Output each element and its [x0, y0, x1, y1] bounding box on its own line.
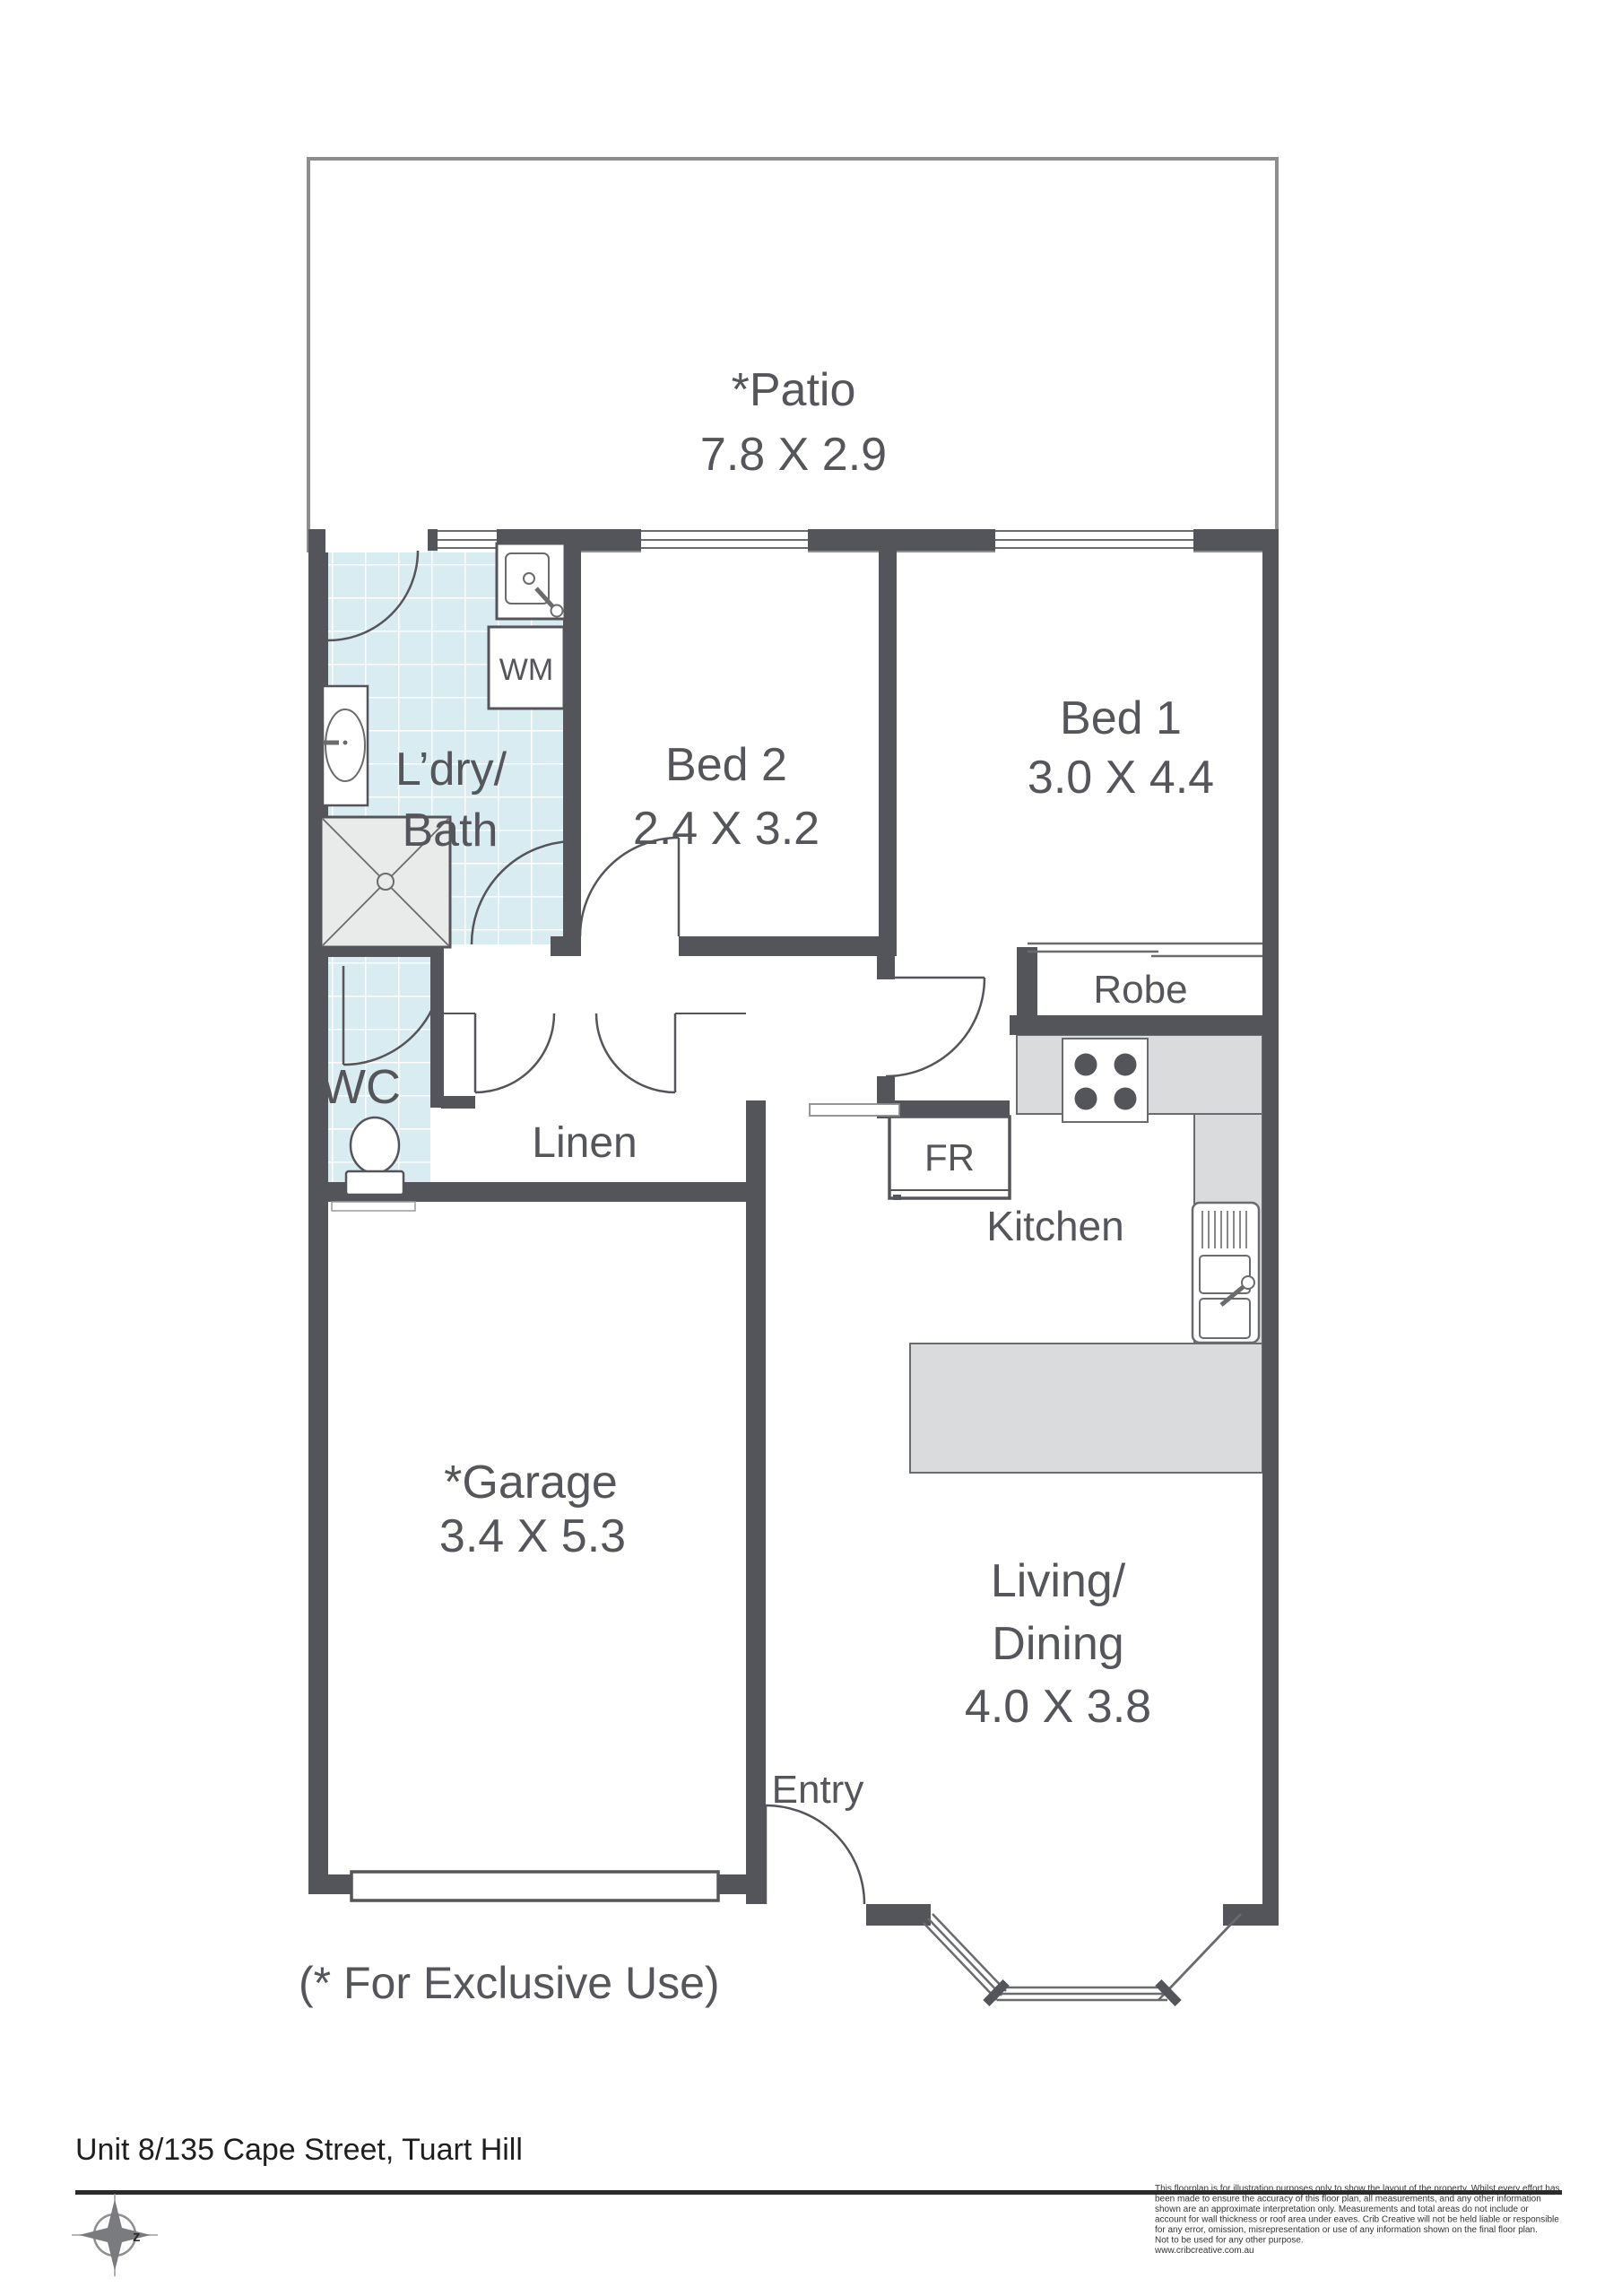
linen-label: Linen [532, 1119, 637, 1167]
living-label-2: Dining [992, 1618, 1123, 1670]
wall-living-bottom-left [866, 1904, 931, 1926]
disclaimer-line: account for wall thickness or roof area … [1155, 2215, 1559, 2225]
fridge-label: FR [924, 1136, 975, 1178]
living-label-1: Living/ [991, 1555, 1126, 1607]
exclusive-use-note: (* For Exclusive Use) [299, 1958, 720, 2008]
disclaimer-block: This floorplan is for illustration purpo… [1154, 2184, 1560, 2256]
disclaimer-line: shown are an approximate interpretation … [1155, 2205, 1529, 2214]
wall-bed1-bed2-divider [879, 551, 897, 956]
linen-left-door-swing [444, 1013, 554, 1092]
living-dims: 4.0 X 3.8 [965, 1681, 1151, 1733]
fridge-recess: FR [889, 1117, 1010, 1200]
wall-divider-tee [551, 936, 581, 956]
top-wall-openings [325, 527, 1193, 552]
robe-label: Robe [1093, 968, 1187, 1012]
bed1-dims: 3.0 X 4.4 [1028, 752, 1214, 804]
laundry-label-1: L’dry/ [395, 744, 507, 796]
garage-door [351, 1872, 718, 1900]
compass-icon: z [72, 2194, 158, 2276]
robe-sliding-door [1028, 944, 1262, 956]
garage-label: *Garage [444, 1457, 618, 1509]
patio-bath-door-opening [325, 527, 428, 552]
wall-robe-bottom [1010, 1015, 1262, 1035]
floorplan-page: WM FR * [0, 0, 1622, 2296]
disclaimer-website: www.cribcreative.com.au [1154, 2246, 1254, 2256]
wc-threshold [332, 1202, 415, 1211]
kitchen-door-swing [886, 978, 984, 1076]
patio-label: *Patio [732, 364, 856, 416]
wc-label: WC [320, 1060, 401, 1114]
floorplan-drawing: WM FR * [0, 0, 1622, 2296]
wall-bed2-bottom [679, 936, 879, 956]
bay-window [924, 1914, 1241, 2006]
garage-dims: 3.4 X 5.3 [439, 1510, 626, 1562]
bay-window-left-diagonal [924, 1914, 1006, 2000]
address-title: Unit 8/135 Cape Street, Tuart Hill [75, 2133, 523, 2167]
bed2-label: Bed 2 [665, 739, 787, 791]
washing-machine: WM [489, 627, 564, 709]
bay-window-right-diagonal [1158, 1914, 1241, 2000]
entry-door-swing [766, 1805, 864, 1904]
washing-machine-label: WM [499, 653, 553, 687]
kitchen-counter-bottom [910, 1344, 1262, 1473]
kitchen-label: Kitchen [986, 1203, 1123, 1249]
disclaimer-line: been made to ensure the accuracy of this… [1155, 2195, 1541, 2205]
kitchen-sink [1193, 1203, 1259, 1343]
stove-cooktop [1063, 1039, 1148, 1122]
disclaimer-line: This floorplan is for illustration purpo… [1155, 2184, 1560, 2194]
disclaimer-line: for any error, omission, misrepresentati… [1155, 2225, 1538, 2235]
wall-linen-stub [441, 1096, 475, 1109]
bed2-dims: 2.4 X 3.2 [633, 803, 820, 855]
bay-window-bottom [997, 1987, 1167, 2000]
laundry-label-2: Bath [403, 804, 499, 857]
wall-hall-kitchen-stub-upper [877, 956, 895, 979]
entry-bench [810, 1104, 899, 1116]
bed1-label: Bed 1 [1060, 692, 1182, 744]
laundry-tub [497, 544, 565, 619]
wall-garage-right [746, 1100, 766, 1904]
patio-dims: 7.8 X 2.9 [700, 429, 887, 481]
vanity-basin [323, 686, 368, 805]
entry-label: Entry [772, 1768, 864, 1812]
patio-outline [308, 159, 1277, 551]
disclaimer-line: Not to be used for any other purpose. [1155, 2236, 1304, 2246]
north-letter: z [133, 2228, 141, 2245]
wall-right [1262, 529, 1279, 1926]
linen-right-door-swing [596, 1013, 746, 1092]
